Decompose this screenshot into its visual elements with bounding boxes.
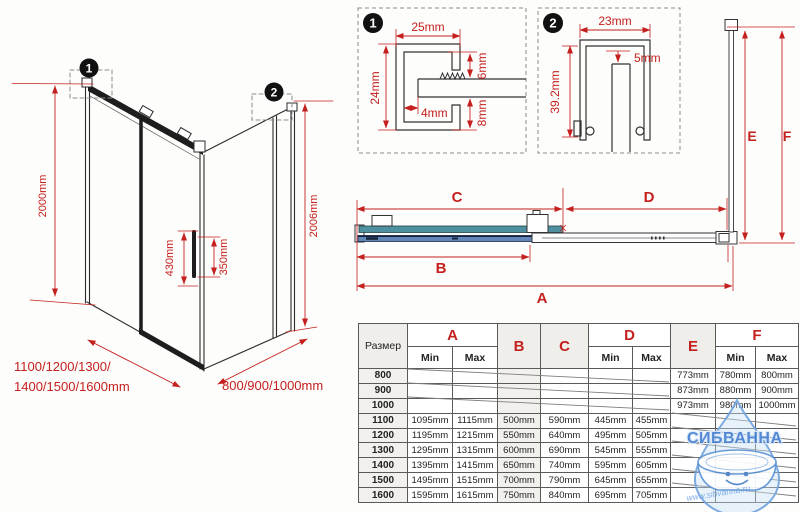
cell-c: 590mm	[541, 413, 589, 428]
d1-width-label: 25mm	[411, 20, 444, 34]
handle-inner-label: 350mm	[218, 239, 230, 276]
cell-size: 1100	[359, 413, 408, 428]
cell-e	[671, 443, 716, 458]
cell-a-min: 1395mm	[408, 458, 453, 473]
panel-fitting	[452, 238, 458, 240]
cell-a-max	[453, 383, 498, 398]
cell-a-min	[408, 383, 453, 398]
door-handle	[192, 230, 196, 278]
cell-c	[541, 383, 589, 398]
cell-d-min: 445mm	[589, 413, 633, 428]
wall-end-block	[355, 225, 364, 242]
cell-size: 800	[359, 369, 408, 384]
cell-d-max: 505mm	[633, 428, 671, 443]
iso-side-profile-cap	[287, 103, 297, 111]
detail-2-region-box	[252, 94, 292, 120]
detail-2-border	[538, 8, 680, 153]
subheader-a-max: Max	[453, 347, 498, 369]
cell-c	[541, 398, 589, 413]
table-row: 800773mm780mm800mm	[359, 369, 799, 384]
cell-a-min: 1095mm	[408, 413, 453, 428]
cell-c: 790mm	[541, 473, 589, 488]
cell-f-max	[756, 458, 799, 473]
cell-e	[671, 413, 716, 428]
table-row: 13001295mm1315mm600mm690mm545mm555mm	[359, 443, 799, 458]
cell-f-min	[716, 458, 756, 473]
cell-a-max: 1415mm	[453, 458, 498, 473]
height-left-label: 2000mm	[37, 175, 49, 218]
cell-d-min: 545mm	[589, 443, 633, 458]
sliding-door-glass	[359, 226, 563, 233]
detail-2-extensions	[562, 24, 650, 137]
cell-d-min: 695mm	[589, 488, 633, 503]
subheader-d-max: Max	[633, 347, 671, 369]
detail-2-callout: 2 23mm 5mm 39.2mm	[538, 8, 680, 153]
cell-size: 1200	[359, 428, 408, 443]
cell-d-max: 705mm	[633, 488, 671, 503]
cell-f-min: 980mm	[716, 398, 756, 413]
cell-f-min	[716, 488, 756, 503]
cell-f-max: 900mm	[756, 383, 799, 398]
cell-f-max	[756, 428, 799, 443]
callout-badge-2: 2	[265, 83, 284, 102]
callout-badge-2: 2	[543, 13, 563, 33]
cell-e	[671, 488, 716, 503]
cell-c: 740mm	[541, 458, 589, 473]
cell-b: 500mm	[498, 413, 541, 428]
bracket-knob	[533, 211, 540, 216]
cell-a-max: 1315mm	[453, 443, 498, 458]
cell-b: 550mm	[498, 428, 541, 443]
col-header-size: Размер	[359, 324, 408, 369]
dim-e-label: E	[747, 128, 756, 144]
cell-a-max	[453, 398, 498, 413]
dimension-table: Размер A B C D E F Min Max Min Max Min M…	[358, 323, 799, 503]
cell-d-min	[589, 369, 633, 384]
col-header-d: D	[589, 324, 671, 347]
cell-size: 1600	[359, 488, 408, 503]
detail-1-region-box	[70, 70, 112, 98]
table-row: 14001395mm1415mm650mm740mm595mm605mm	[359, 458, 799, 473]
detail-1-border	[358, 8, 526, 153]
roller-hook-icon	[586, 127, 594, 135]
cell-f-max	[756, 473, 799, 488]
cell-a-min	[408, 369, 453, 384]
table-row: 16001595mm1615mm750mm840mm695mm705mm	[359, 488, 799, 503]
cell-d-min: 595mm	[589, 458, 633, 473]
cell-a-min: 1595mm	[408, 488, 453, 503]
cell-d-min	[589, 383, 633, 398]
latch-piece	[574, 121, 581, 136]
subheader-f-max: Max	[756, 347, 799, 369]
depth-options-label: 800/900/1000mm	[222, 378, 323, 393]
cell-c	[541, 369, 589, 384]
table-row: 12001195mm1215mm550mm640mm495mm505mm	[359, 428, 799, 443]
cell-b: 750mm	[498, 488, 541, 503]
cell-d-max: 555mm	[633, 443, 671, 458]
top-view-drawing: C D B A E F	[355, 20, 795, 308]
cell-f-max	[756, 443, 799, 458]
col-header-f: F	[716, 324, 799, 347]
rail-hatch-marks	[651, 237, 665, 240]
cell-f-max	[756, 488, 799, 503]
detail-1-extensions	[378, 29, 477, 130]
d1-topgap-label: 6mm	[475, 53, 489, 80]
subheader-d-min: Min	[589, 347, 633, 369]
glass-clip-teeth	[440, 73, 465, 79]
d2-width-label: 23mm	[598, 14, 631, 28]
cell-d-max: 605mm	[633, 458, 671, 473]
cell-size: 1400	[359, 458, 408, 473]
table-row: 900873mm880mm900mm	[359, 383, 799, 398]
iso-frame-lines	[86, 84, 295, 371]
height-right-label: 2006mm	[308, 195, 320, 238]
cell-b: 650mm	[498, 458, 541, 473]
roller-block-icon	[139, 106, 153, 118]
iso-extension-lines	[12, 84, 333, 333]
handle-outer-label: 430mm	[164, 240, 176, 277]
cell-d-min	[589, 398, 633, 413]
cell-a-max: 1515mm	[453, 473, 498, 488]
cell-e	[671, 428, 716, 443]
cell-e	[671, 458, 716, 473]
cell-f-max	[756, 413, 799, 428]
width-options-label-2: 1400/1500/1600mm	[14, 379, 130, 394]
cell-size: 1000	[359, 398, 408, 413]
d1-height-label: 24mm	[368, 71, 382, 104]
cell-f-min	[716, 413, 756, 428]
cell-f-min	[716, 443, 756, 458]
iso-wall-profile-cap	[82, 78, 92, 87]
cell-a-min: 1295mm	[408, 443, 453, 458]
col-header-b: B	[498, 324, 541, 369]
cell-e	[671, 473, 716, 488]
cell-f-max: 800mm	[756, 369, 799, 384]
bottom-rail-plan	[532, 233, 737, 243]
cell-b	[498, 398, 541, 413]
cell-a-min	[408, 398, 453, 413]
badge-number: 2	[549, 16, 556, 31]
cell-d-min: 645mm	[589, 473, 633, 488]
roller-bracket-right	[527, 215, 548, 233]
corner-block	[716, 232, 737, 245]
cell-c: 690mm	[541, 443, 589, 458]
dim-c-label: C	[452, 189, 463, 206]
depth-dim-line	[218, 339, 307, 384]
dim-d-label: D	[644, 189, 655, 206]
cell-d-max	[633, 369, 671, 384]
cell-a-max	[453, 369, 498, 384]
cell-b	[498, 369, 541, 384]
col-header-a: A	[408, 324, 498, 347]
cell-size: 1300	[359, 443, 408, 458]
side-panel-plan	[729, 30, 734, 232]
cell-e: 873mm	[671, 383, 716, 398]
callout-badge-1: 1	[363, 13, 383, 33]
col-header-c: C	[541, 324, 589, 369]
badge-1-number: 1	[86, 62, 93, 76]
roller-hook-icon	[636, 127, 644, 135]
fixed-panel-glass	[358, 236, 532, 242]
cell-a-min: 1495mm	[408, 473, 453, 488]
cell-f-max: 1000mm	[756, 398, 799, 413]
cell-c: 640mm	[541, 428, 589, 443]
roller-block-icon	[177, 128, 191, 140]
iso-top-rail	[88, 84, 203, 155]
table-row: 11001095mm1115mm500mm590mm445mm455mm	[359, 413, 799, 428]
badge-2-number: 2	[271, 86, 278, 100]
badge-number: 1	[369, 16, 376, 31]
panel-fitting	[366, 237, 378, 240]
detail-1-callout: 1 25mm 24mm 6mm 8mm 4mm	[358, 8, 526, 153]
iso-bottom-rail	[139, 328, 204, 371]
d1-inset-label: 4mm	[421, 106, 448, 120]
wall-profile-section	[396, 44, 526, 130]
cell-d-max: 655mm	[633, 473, 671, 488]
col-header-e: E	[671, 324, 716, 369]
cell-a-min: 1195mm	[408, 428, 453, 443]
cell-size: 1500	[359, 473, 408, 488]
width-dim-line	[88, 340, 180, 387]
cell-f-min	[716, 428, 756, 443]
d1-bottomgap-label: 8mm	[475, 100, 489, 127]
cell-a-max: 1215mm	[453, 428, 498, 443]
cell-e: 773mm	[671, 369, 716, 384]
rail-end-cap	[194, 141, 205, 152]
cell-e: 973mm	[671, 398, 716, 413]
dim-a-label: A	[537, 290, 548, 307]
roller-bracket-left	[372, 216, 392, 227]
side-panel-cap	[725, 20, 738, 31]
width-options-label-1: 1100/1200/1300/	[14, 359, 111, 374]
dim-f-label: F	[783, 128, 792, 144]
corner-block-inner	[719, 234, 729, 243]
cell-a-max: 1115mm	[453, 413, 498, 428]
d2-height-label: 39.2mm	[548, 70, 562, 113]
subheader-f-min: Min	[716, 347, 756, 369]
cell-d-min: 495mm	[589, 428, 633, 443]
topview-extension-lines	[357, 27, 795, 291]
cell-b	[498, 383, 541, 398]
d2-gap-label: 5mm	[634, 51, 661, 65]
cell-d-max	[633, 398, 671, 413]
cell-size: 900	[359, 383, 408, 398]
cell-d-max: 455mm	[633, 413, 671, 428]
spec-sheet: Размер A B C D E F Min Max Min Max Min M…	[0, 0, 800, 512]
cell-d-max	[633, 383, 671, 398]
iso-drawing: 1 2 2000mm 2006mm 430mm 350mm 1100/1200/…	[12, 59, 333, 395]
cell-f-min: 780mm	[716, 369, 756, 384]
cell-c: 840mm	[541, 488, 589, 503]
cell-f-min: 880mm	[716, 383, 756, 398]
table-row: 1000973mm980mm1000mm	[359, 398, 799, 413]
cell-b: 700mm	[498, 473, 541, 488]
cell-a-max: 1615mm	[453, 488, 498, 503]
cell-f-min	[716, 473, 756, 488]
table-row: 15001495mm1515mm700mm790mm645mm655mm	[359, 473, 799, 488]
callout-badge-1: 1	[80, 59, 99, 78]
cell-b: 600mm	[498, 443, 541, 458]
dim-b-label: B	[436, 260, 447, 277]
subheader-a-min: Min	[408, 347, 453, 369]
rail-profile-section	[574, 40, 650, 152]
